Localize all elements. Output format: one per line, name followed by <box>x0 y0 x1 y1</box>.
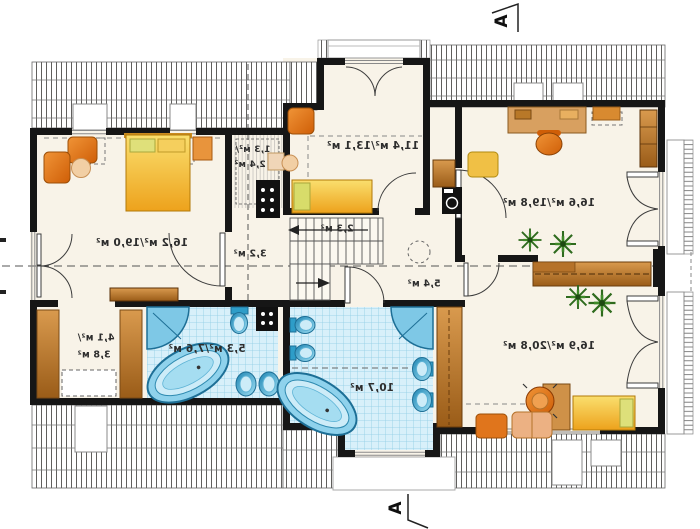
pillow-icon <box>294 183 310 210</box>
room-label-bottom-right: 16,9 м²/20,8 м² <box>503 340 595 352</box>
pouf-icon <box>468 152 498 177</box>
shelf-cabinet-icon <box>593 107 620 120</box>
pillow-icon <box>620 399 633 427</box>
room-label-hall-west: 3,2 м² <box>233 249 266 260</box>
room-label-bathroom-large: 10,7 м² <box>350 382 394 394</box>
room-label-stairs: 2,3 м² <box>320 224 353 235</box>
nightstand-icon <box>193 137 212 160</box>
section-marker-top: A <box>492 14 512 27</box>
wardrobe-icon <box>37 310 59 398</box>
room-label-closet-1: 1,3 м²/ <box>235 145 270 155</box>
dresser-icon <box>110 288 178 301</box>
room-label-top-center: 11,4 м²/13,1 м² <box>327 140 419 152</box>
pillow-icon <box>158 139 185 152</box>
room-label-wardrobe-2: 3,8 м² <box>77 350 110 361</box>
round-table-icon <box>282 155 298 171</box>
armchair-icon <box>44 152 70 183</box>
room-label-top-right: 16,6 м²/19,8 м² <box>503 197 595 209</box>
tall-cabinet-icon <box>640 110 657 167</box>
hall-furniture <box>433 160 455 187</box>
side-table-icon <box>72 159 91 178</box>
section-marker-bottom: A <box>386 501 406 514</box>
pillow-icon <box>130 139 155 152</box>
room-label-closet-2: 2,4 м² <box>234 160 266 170</box>
office-chair-icon <box>536 133 562 155</box>
room-label-hall-east: 5,4 м² <box>407 279 440 290</box>
plant-icon <box>550 231 576 257</box>
wardrobe-icon <box>120 310 142 398</box>
porch-outline <box>333 457 455 490</box>
side-table-icon <box>268 153 284 170</box>
room-label-bathroom-small: 5,3 м²/7,6 м² <box>168 343 245 355</box>
room-label-bedroom-left: 16,2 м²/19,0 м² <box>96 237 188 249</box>
floor-plan-canvas: 16,2 м²/19,0 м² 11,4 м²/13,1 м² 16,6 м²/… <box>0 0 700 529</box>
plant-icon <box>519 229 542 252</box>
armchair-icon <box>288 108 314 134</box>
room-label-wardrobe-1: 4,1 м²/ <box>78 333 115 344</box>
armchair-icon <box>476 414 507 438</box>
cabinet-icon <box>433 160 455 187</box>
floor-plan-drawing <box>0 0 700 529</box>
